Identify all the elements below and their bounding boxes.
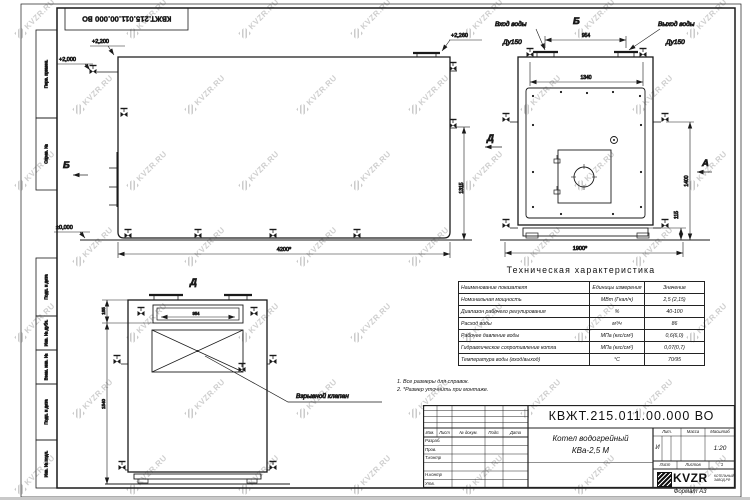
frame-side-label: Инв. № дубл. xyxy=(44,320,49,347)
dim-4200: 4200* xyxy=(277,247,292,253)
dim-1315: 1315 xyxy=(459,182,465,193)
table-cell: 2,5 (2,15) xyxy=(645,294,705,306)
valve-icon xyxy=(251,308,258,317)
dim-115: 115 xyxy=(674,211,680,219)
elevation-2000: +2,000 xyxy=(59,57,76,63)
dim-1540: 1540 xyxy=(101,398,106,409)
table-cell: 40-100 xyxy=(645,306,705,318)
table-cell: °С xyxy=(590,354,645,366)
valve-icon xyxy=(503,114,510,123)
valve-icon xyxy=(138,308,145,317)
format-label: Формат А3 xyxy=(640,489,740,495)
tb-header-cell: № докум. xyxy=(452,428,485,437)
frame-side-label: Справ. № xyxy=(44,144,49,164)
valve-icon xyxy=(121,109,128,118)
table-cell: Номинальная мощность xyxy=(459,294,590,306)
table-row: Расход водым³/ч86 xyxy=(459,318,705,330)
table-row: Диапазон рабочего регулирования%40-100 xyxy=(459,306,705,318)
valve-icon xyxy=(270,356,277,365)
explosion-valve-callout: Взрывной клапан xyxy=(296,392,349,400)
kvzr-logo-subtext: КОТЕЛЬНЫЙ ЗАВОД.РФ xyxy=(714,474,736,483)
tb-sig-row-label: Н.контр xyxy=(425,471,453,480)
dim-1340: 1340 xyxy=(580,75,591,81)
note-line: 2. *Размер уточнить при монтаже. xyxy=(397,386,488,394)
valve-icon xyxy=(119,462,126,471)
frame-side-label: Взам. инв. № xyxy=(44,353,49,380)
frame-side-label: Перв. примен. xyxy=(44,60,49,89)
valve-icon xyxy=(270,230,277,239)
table-row: Гидравлическое сопротивление котлаМПа (к… xyxy=(459,342,705,354)
tb-sig-row-label xyxy=(425,463,453,472)
elevation-2260: +2,260 xyxy=(451,33,468,39)
table-row: Рабочее давление водыМПа (кгс/см²)0,6(6,… xyxy=(459,330,705,342)
table-header-cell: Наименование показателя xyxy=(459,282,590,294)
valve-icon xyxy=(503,220,510,229)
tech-table-title: Техническая характеристика xyxy=(458,265,704,275)
product-name-line1: Котел водогрейный xyxy=(528,434,653,443)
sheets-count: 1 xyxy=(709,461,735,469)
lit-value: И xyxy=(653,436,662,461)
dim-1900: 1900* xyxy=(573,246,588,252)
dim-185: 185 xyxy=(101,307,106,315)
table-header-cell: Единицы измерения xyxy=(590,282,645,294)
outlet-label: Выход воды xyxy=(658,20,695,28)
view-rear: Б xyxy=(495,16,712,257)
drawing-sheet: KVZR.RUKVZR.RUKVZR.RUKVZR.RUKVZR.RUKVZR.… xyxy=(0,0,750,500)
table-cell: МПа (кгс/см²) xyxy=(590,342,645,354)
view-label-a: А xyxy=(701,158,709,169)
inlet-label: Вход воды xyxy=(495,20,527,28)
tech-table-body: Наименование показателя Единицы измерени… xyxy=(459,282,705,366)
tb-sig-row-label: Разраб. xyxy=(425,437,453,446)
view-main-side: +2,200 +2,000 +2,260 ±0,000 Б Д 1315 xyxy=(54,33,502,258)
tb-sig-row-label: Пров. xyxy=(425,446,453,455)
table-cell: 0,6(6,0) xyxy=(645,330,705,342)
valve-icon xyxy=(114,356,121,365)
table-row: Температура воды (вход/выход)°С70/95 xyxy=(459,354,705,366)
valve-icon xyxy=(125,230,132,239)
table-cell: 70/95 xyxy=(645,354,705,366)
view-front: Д 954 Взрывной клапан xyxy=(101,277,382,484)
tb-header-cell: Изм. xyxy=(423,428,437,437)
valve-icon xyxy=(640,49,647,58)
valve-icon xyxy=(662,220,669,229)
frame-side-label: Инв. № подл. xyxy=(44,451,49,478)
tb-header-cell: Лист xyxy=(437,428,452,437)
scale-label: Масштаб xyxy=(705,428,735,436)
doc-number-rotated: КВЖТ.215.011.00.000 ВО xyxy=(82,15,171,22)
table-cell: Гидравлическое сопротивление котла xyxy=(459,342,590,354)
sheet-label: Лист xyxy=(653,461,677,469)
valve-icon xyxy=(239,364,246,373)
kvzr-logo-subline: ЗАВОД.РФ xyxy=(714,478,736,482)
outlet-dn-label: Ду150 xyxy=(665,39,685,46)
valve-icon xyxy=(90,66,97,75)
elevation-2200: +2,200 xyxy=(92,39,109,45)
mass-label: Масса xyxy=(681,428,705,436)
kvzr-logo-text: KVZR xyxy=(673,469,715,488)
table-cell: Рабочее давление воды xyxy=(459,330,590,342)
sheets-label: Листов xyxy=(677,461,709,469)
dim-1400: 1400 xyxy=(684,175,690,186)
front-view-title: Д xyxy=(189,277,197,288)
rear-view-title: Б xyxy=(573,16,580,27)
tech-table: Наименование показателя Единицы измерени… xyxy=(458,281,704,366)
title-block: КВЖТ.215.011.00.000 ВО Котел водогрейный… xyxy=(423,405,735,488)
tb-sig-row-label: Утв. xyxy=(425,480,453,489)
valve-icon xyxy=(354,230,361,239)
table-cell: 86 xyxy=(645,318,705,330)
table-cell: 0,07(0,7) xyxy=(645,342,705,354)
view-label-b: Б xyxy=(63,160,70,171)
inlet-dn-label: Ду150 xyxy=(502,39,522,46)
elevation-0000: ±0,000 xyxy=(56,225,73,231)
product-name-line2: КВа-2,5 М xyxy=(528,446,653,455)
table-header-cell: Значение xyxy=(645,282,705,294)
frame-side-label: Подп. и дата xyxy=(44,399,49,425)
frame-side-label: Подп. и дата xyxy=(44,274,49,300)
table-cell: МПа (кгс/см²) xyxy=(590,330,645,342)
view-label-d: Д xyxy=(486,133,494,144)
table-cell: Диапазон рабочего регулирования xyxy=(459,306,590,318)
table-cell: % xyxy=(590,306,645,318)
valve-icon xyxy=(662,114,669,123)
table-cell: МВт (Гкал/ч) xyxy=(590,294,645,306)
kvzr-logo-icon xyxy=(657,472,672,487)
notes: 1. Все размеры для справок. 2. *Размер у… xyxy=(397,378,488,394)
note-line: 1. Все размеры для справок. xyxy=(397,378,488,386)
tb-sig-row-label: Т.контр xyxy=(425,454,453,463)
valve-icon xyxy=(527,49,534,58)
table-header-row: Наименование показателя Единицы измерени… xyxy=(459,282,705,294)
tb-header-cell: Подп. xyxy=(485,428,503,437)
doc-number: КВЖТ.215.011.00.000 ВО xyxy=(528,405,735,428)
table-cell: м³/ч xyxy=(590,318,645,330)
dim-954-front: 954 xyxy=(193,311,201,316)
valve-icon xyxy=(195,230,202,239)
lit-label: Лит. xyxy=(653,428,681,436)
scale-value: 1:20 xyxy=(705,436,735,461)
dim-954-rear: 954 xyxy=(582,33,591,39)
valve-icon xyxy=(270,462,277,471)
tb-header-cell: Дата xyxy=(503,428,528,437)
table-cell: Расход воды xyxy=(459,318,590,330)
table-row: Номинальная мощностьМВт (Гкал/ч)2,5 (2,1… xyxy=(459,294,705,306)
table-cell: Температура воды (вход/выход) xyxy=(459,354,590,366)
